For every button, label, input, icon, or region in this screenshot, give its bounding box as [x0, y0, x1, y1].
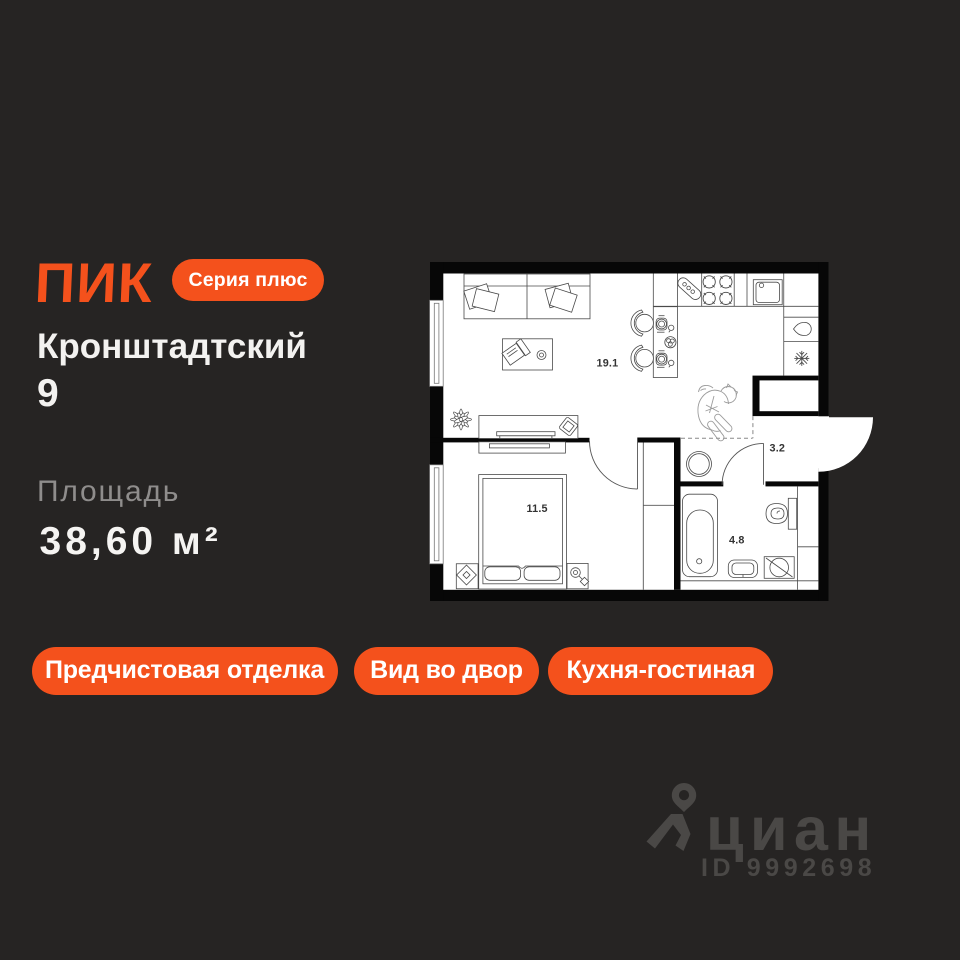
svg-text:3.2: 3.2: [770, 443, 786, 455]
svg-text:19.1: 19.1: [597, 358, 619, 370]
svg-text:11.5: 11.5: [527, 503, 548, 515]
svg-text:4.8: 4.8: [729, 535, 745, 547]
